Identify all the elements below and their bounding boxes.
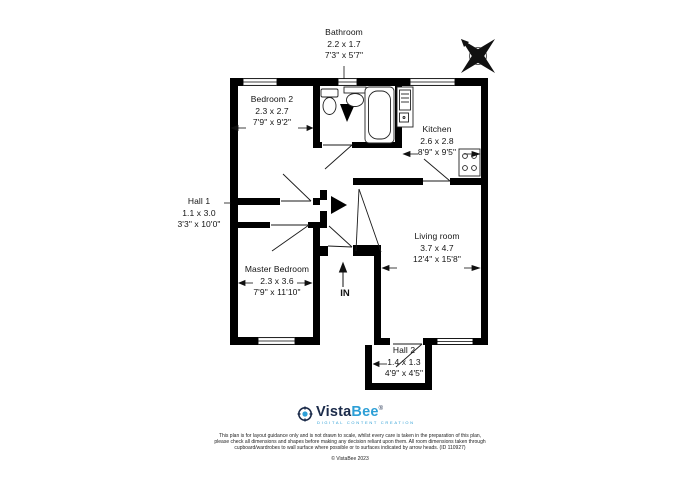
vistabee-logo-icon: [297, 406, 313, 422]
entrance-arrow-icon: [340, 263, 347, 287]
room-name: Living room: [377, 231, 497, 243]
label-living-room: Living room 3.7 x 4.7 12'4" x 15'8": [377, 231, 497, 266]
room-name: Hall 1: [153, 196, 245, 208]
sink-icon: [344, 87, 366, 107]
room-name: Bedroom 2: [222, 94, 322, 106]
bathroom-fixtures: [321, 87, 394, 143]
compass-icon: [461, 39, 495, 73]
brand-bee-text: Bee: [351, 404, 378, 420]
room-metric: 2.3 x 2.7: [222, 106, 322, 118]
label-hall1: Hall 1 1.1 x 3.0 3'3" x 10'0": [153, 196, 245, 231]
door-bedroom2: [281, 174, 311, 201]
footer-disclaimer: This plan is for layout guidance only an…: [0, 433, 700, 462]
vistabee-wordmark: VistaBee®: [316, 404, 383, 420]
room-name: Master Bedroom: [217, 264, 337, 276]
door-bathroom: [323, 145, 352, 169]
room-imperial: 7'9" x 11'10": [217, 287, 337, 299]
door-marker-hall1: [331, 196, 347, 214]
room-metric: 2.6 x 2.8: [387, 136, 487, 148]
label-master-bedroom: Master Bedroom 2.3 x 3.6 7'9" x 11'10": [217, 264, 337, 299]
door-markers: [331, 104, 355, 214]
entrance-in-label: IN: [330, 288, 360, 299]
door-entrance: [328, 226, 352, 247]
door-kitchen: [423, 159, 450, 181]
room-name: Bathroom: [294, 27, 394, 39]
room-name: Kitchen: [387, 124, 487, 136]
vistabee-tagline: DIGITAL CONTENT CREATION: [317, 420, 415, 425]
room-imperial: 7'9" x 9'2": [222, 117, 322, 129]
room-metric: 1.4 x 1.3: [360, 357, 448, 369]
registered-trademark: ®: [379, 406, 384, 412]
room-metric: 2.2 x 1.7: [294, 39, 394, 51]
room-imperial: 12'4" x 15'8": [377, 254, 497, 266]
label-bathroom: Bathroom 2.2 x 1.7 7'3" x 5'7": [294, 27, 394, 62]
door-master-bedroom: [271, 225, 309, 251]
kitchen-sink-icon: [397, 87, 413, 127]
label-hall2: Hall 2 1.4 x 1.3 4'9" x 4'5": [360, 345, 448, 380]
toilet-icon: [321, 89, 338, 115]
vistabee-logo: VistaBee® DIGITAL CONTENT CREATION: [297, 404, 417, 434]
room-imperial: 4'9" x 4'5": [360, 368, 448, 380]
label-bedroom2: Bedroom 2 2.3 x 2.7 7'9" x 9'2": [222, 94, 322, 129]
room-imperial: 7'3" x 5'7": [294, 50, 394, 62]
copyright-text: © VistaBee 2023: [0, 456, 700, 462]
label-kitchen: Kitchen 2.6 x 2.8 8'9" x 9'5": [387, 124, 487, 159]
room-metric: 3.7 x 4.7: [377, 243, 497, 255]
room-imperial: 3'3" x 10'0": [153, 219, 245, 231]
room-metric: 2.3 x 3.6: [217, 276, 337, 288]
room-name: Hall 2: [360, 345, 448, 357]
disclaimer-line-3: cupboard/wardrobes to wall surface where…: [234, 445, 465, 451]
brand-vista-text: Vista: [316, 404, 351, 420]
room-imperial: 8'9" x 9'5": [387, 147, 487, 159]
room-metric: 1.1 x 3.0: [153, 208, 245, 220]
floorplan-page: Bathroom 2.2 x 1.7 7'3" x 5'7" Bedroom 2…: [0, 0, 700, 500]
